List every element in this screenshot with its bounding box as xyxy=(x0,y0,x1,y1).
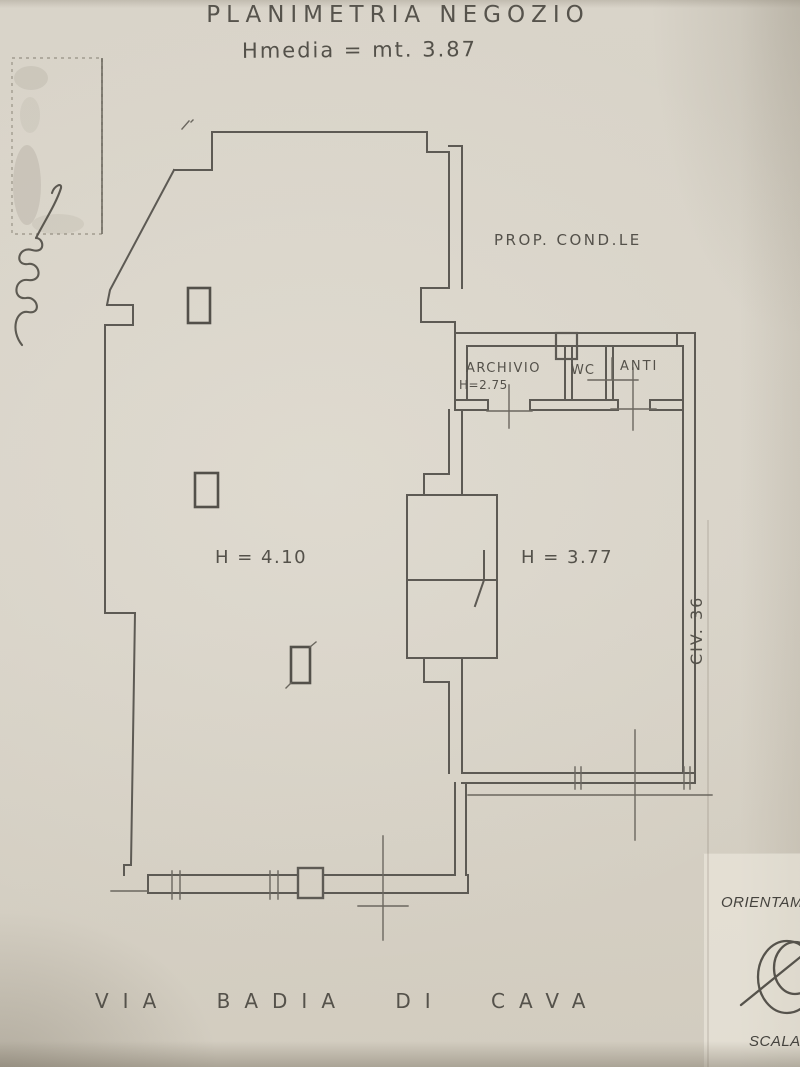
floor-plan-drawing xyxy=(0,0,800,1067)
room-label-wc: WC xyxy=(571,364,595,378)
stamp-mark xyxy=(12,58,102,234)
room-label-anti: ANTI xyxy=(620,360,658,374)
orientation-form-label: ORIENTAM xyxy=(721,895,800,912)
street-name-label: VIA BADIA DI CAVA xyxy=(95,990,599,1012)
average-height-note: Hmedia = mt. 3.87 xyxy=(242,38,477,63)
height-label-right-room: H = 3.77 xyxy=(521,548,613,568)
deposited-note-vertical: DEPOSITATO PRESSO L'U.T.E. xyxy=(0,381,6,1015)
room-label-archivio: ARCHIVIO xyxy=(466,362,541,376)
condo-property-label: PROP. COND.LE xyxy=(494,232,642,249)
plan-title: PLANIMETRIA NEGOZIO xyxy=(168,3,628,28)
scale-form-label: SCALA xyxy=(749,1034,800,1051)
scanned-floor-plan-photo: PLANIMETRIA NEGOZIO Hmedia = mt. 3.87 PR… xyxy=(0,0,800,1067)
pillar-marks xyxy=(188,288,310,683)
height-label-main-room: H = 4.10 xyxy=(215,548,307,568)
compass-icon xyxy=(741,941,800,1013)
civic-number-label: CIV. 36 xyxy=(688,553,714,665)
room-height-archivio: H=2.75 xyxy=(459,379,508,392)
